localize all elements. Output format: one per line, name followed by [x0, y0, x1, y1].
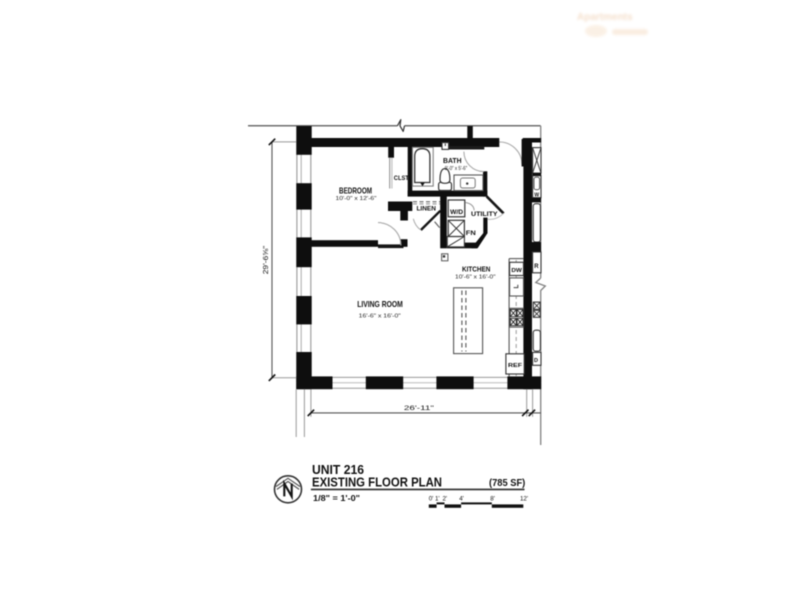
svg-text:BATH: BATH	[443, 156, 462, 165]
svg-text:26'-11": 26'-11"	[404, 405, 435, 412]
svg-text:(785 SF): (785 SF)	[489, 477, 525, 489]
svg-text:1': 1'	[435, 496, 440, 503]
svg-text:LINEN: LINEN	[416, 206, 436, 213]
svg-text:16'-6" x 16'-0": 16'-6" x 16'-0"	[359, 313, 401, 319]
svg-text:DW: DW	[511, 268, 523, 274]
svg-text:10'-6" x 16'-0": 10'-6" x 16'-0"	[455, 274, 496, 280]
svg-text:0': 0'	[429, 496, 434, 503]
svg-text:9'-0" x 5'-6": 9'-0" x 5'-6"	[445, 166, 468, 172]
svg-text:REF: REF	[508, 363, 523, 369]
svg-text:EXISTING FLOOR PLAN: EXISTING FLOOR PLAN	[312, 475, 442, 490]
svg-text:KITCHEN: KITCHEN	[462, 266, 491, 273]
svg-text:CLST: CLST	[394, 175, 410, 182]
svg-text:4': 4'	[459, 496, 464, 503]
svg-text:29'-6⅝": 29'-6⅝"	[261, 245, 270, 274]
svg-text:W: W	[534, 193, 539, 199]
svg-text:10'-0" x 12'-6": 10'-0" x 12'-6"	[336, 196, 377, 202]
svg-text:UTILITY: UTILITY	[471, 211, 498, 218]
svg-text:FN: FN	[466, 231, 476, 237]
svg-text:D: D	[534, 358, 538, 364]
svg-text:W/D: W/D	[450, 210, 464, 216]
svg-text:LIVING ROOM: LIVING ROOM	[357, 299, 403, 309]
svg-text:R: R	[534, 264, 539, 270]
svg-text:1/8" = 1'-0": 1/8" = 1'-0"	[313, 493, 360, 503]
svg-text:8': 8'	[490, 496, 495, 503]
svg-text:BEDROOM: BEDROOM	[339, 185, 372, 195]
svg-text:12': 12'	[520, 496, 528, 503]
svg-text:Apartments: Apartments	[577, 12, 633, 23]
svg-text:2': 2'	[442, 496, 447, 503]
